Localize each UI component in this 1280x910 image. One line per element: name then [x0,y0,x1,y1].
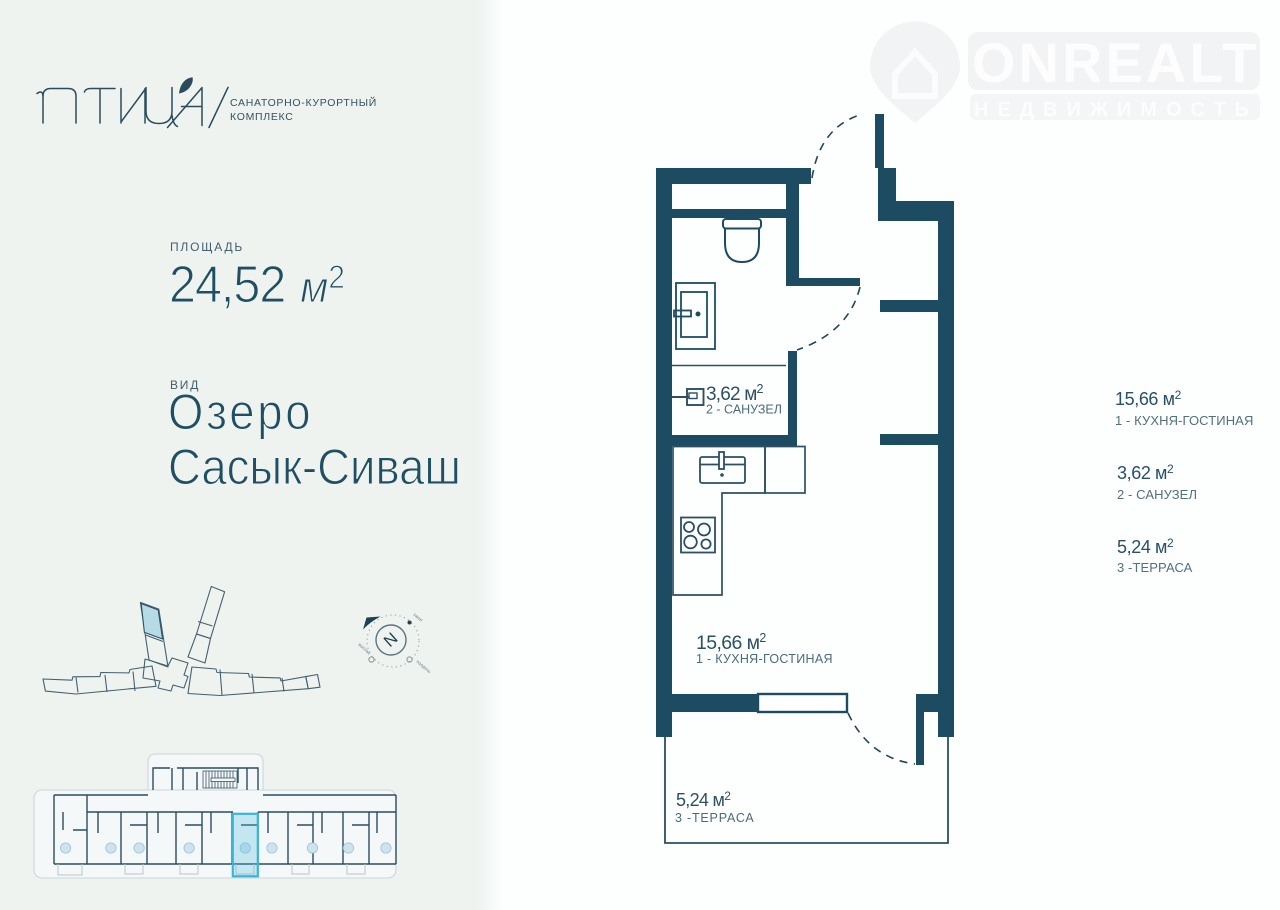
svg-text:полдень: полдень [415,659,432,674]
svg-text:КОМПЛЕКС: КОМПЛЕКС [230,111,294,123]
svg-text:N: N [381,629,402,650]
svg-text:5,24 м2: 5,24 м2 [676,789,731,810]
svg-text:ONREALT: ONREALT [972,31,1260,94]
svg-text:3 -ТЕРРАСА: 3 -ТЕРРАСА [675,811,755,825]
svg-text:САНАТОРНО-КУРОРТНЫЙ: САНАТОРНО-КУРОРТНЫЙ [230,96,377,109]
svg-text:НЕДВИЖИМОСТЬ: НЕДВИЖИМОСТЬ [974,99,1258,121]
svg-text:1 - КУХНЯ-ГОСТИНАЯ: 1 - КУХНЯ-ГОСТИНАЯ [696,652,833,666]
svg-text:закат: закат [412,612,424,623]
svg-text:восход: восход [357,642,371,655]
svg-text:15,66 м2: 15,66 м2 [696,631,766,654]
svg-text:2 - САНУЗЕЛ: 2 - САНУЗЕЛ [706,403,782,417]
